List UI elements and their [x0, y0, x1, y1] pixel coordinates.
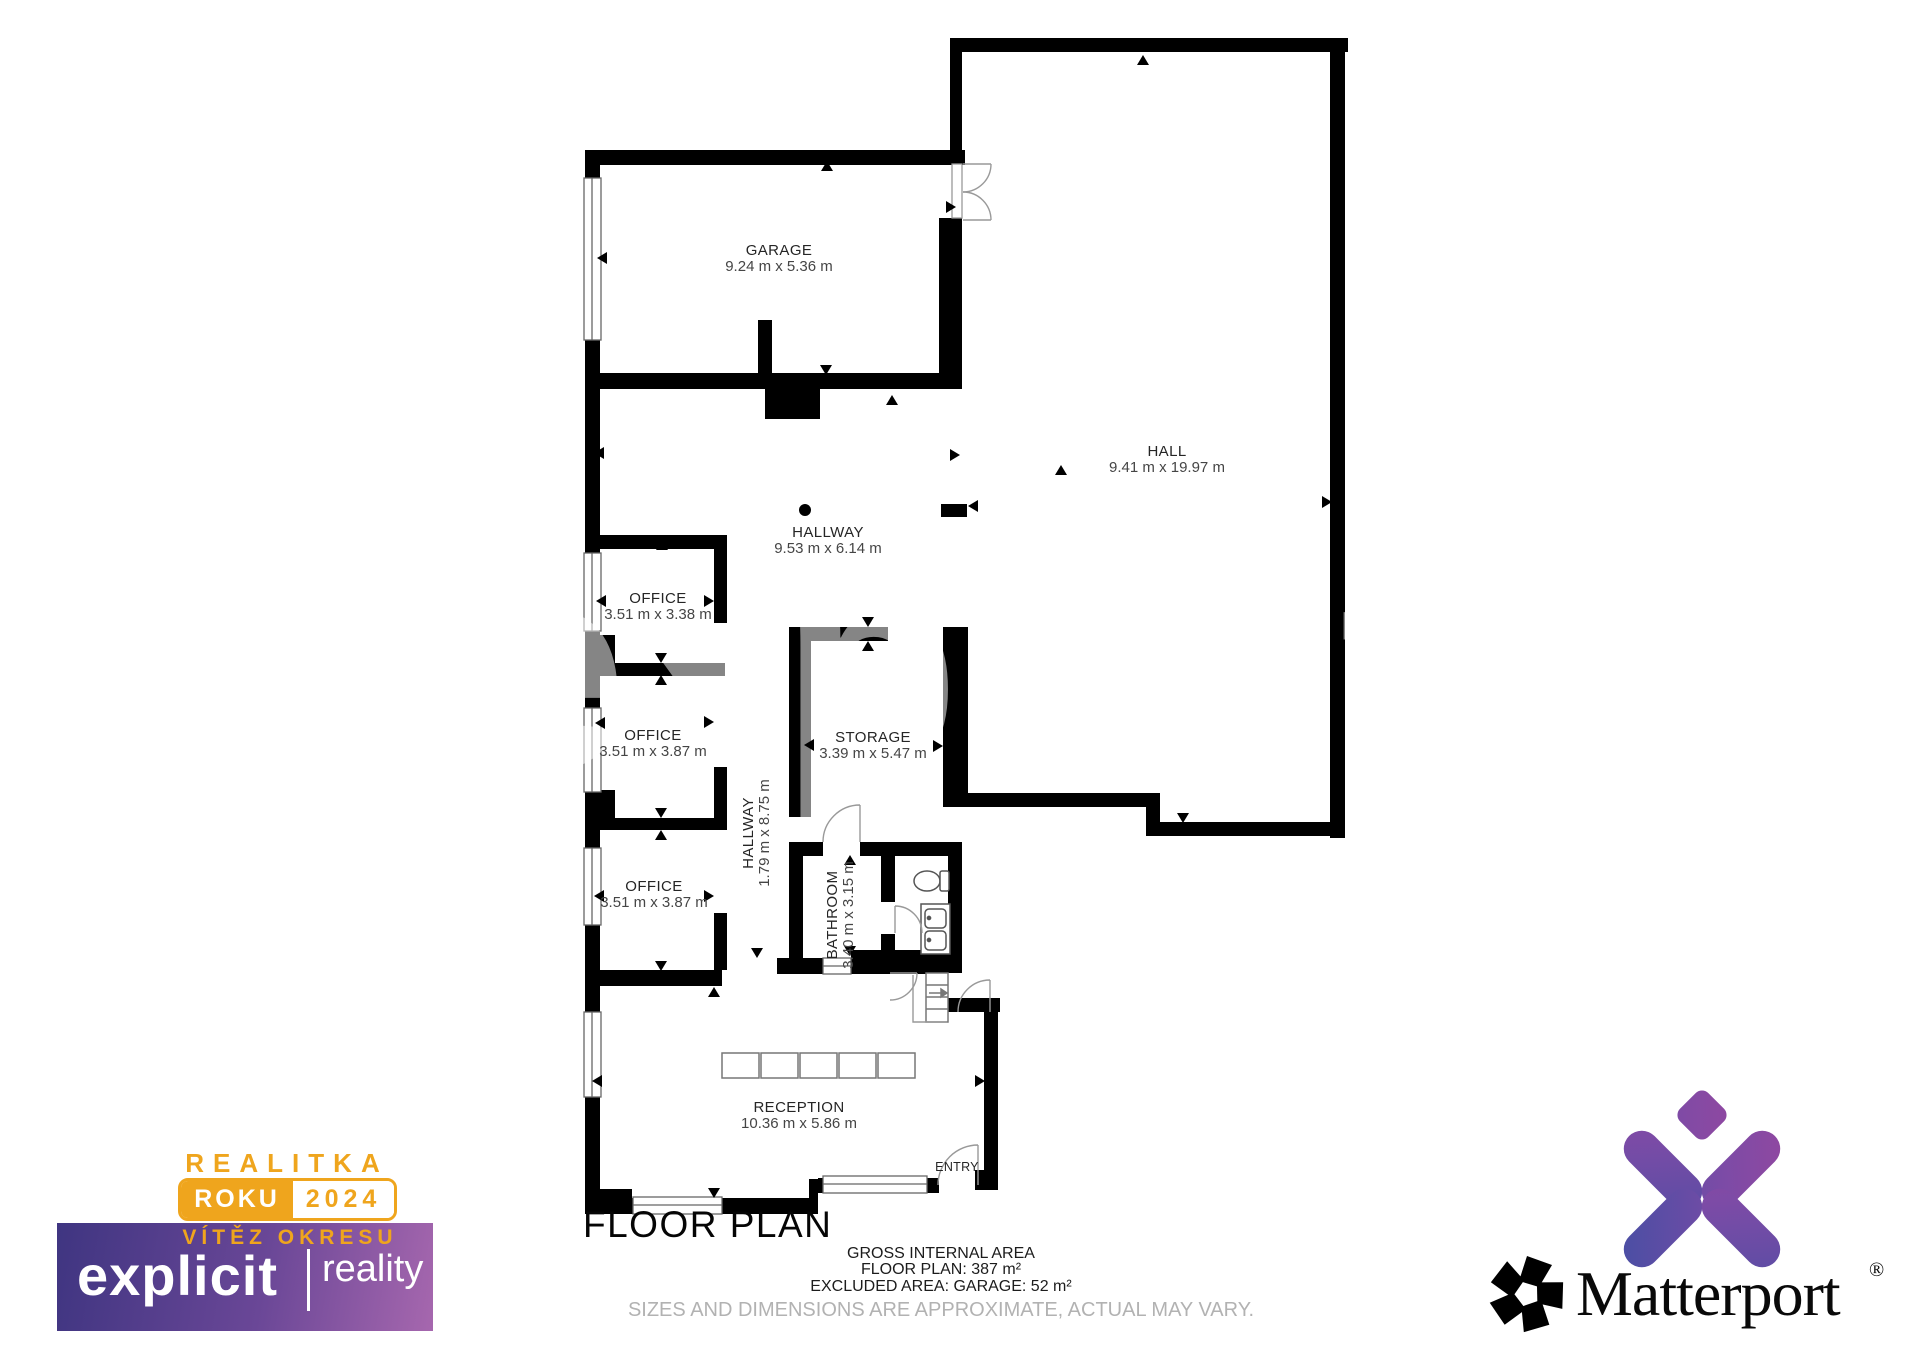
room-label-bathroom: BATHROOM 3.40 m x 3.15 m: [825, 861, 857, 969]
room-label-hallway-upper: HALLWAY 9.53 m x 6.14 m: [774, 525, 882, 557]
matterport-aperture-icon: [1484, 1256, 1570, 1339]
room-label-storage: STORAGE 3.39 m x 5.47 m: [819, 730, 927, 762]
registered-trademark-symbol: ®: [1869, 1259, 1884, 1282]
award-year-segment: 2024: [293, 1181, 394, 1218]
brand-explicit: explicit: [77, 1243, 278, 1308]
room-label-hallway-lower: HALLWAY 1.79 m x 8.75 m: [741, 779, 773, 887]
brand-reality: reality: [322, 1248, 423, 1291]
award-roku-segment: ROKU: [181, 1181, 293, 1218]
area-summary: GROSS INTERNAL AREA FLOOR PLAN: 387 m² E…: [810, 1246, 1071, 1295]
room-label-office-1: OFFICE 3.51 m x 3.38 m: [604, 591, 712, 623]
stairs-icon: [926, 973, 948, 1022]
room-label-entry: ENTRY: [935, 1159, 979, 1175]
room-label-reception: RECEPTION 10.36 m x 5.86 m: [741, 1100, 857, 1132]
floor-plan-area-line: FLOOR PLAN: 387 m²: [810, 1262, 1071, 1278]
room-label-office-3: OFFICE 3.51 m x 3.87 m: [600, 879, 708, 911]
award-year-badge: ROKU 2024: [178, 1178, 397, 1221]
matterport-x-icon: [1616, 1087, 1787, 1275]
watermark-text: explicit: [464, 501, 1437, 833]
room-label-office-2: OFFICE 3.51 m x 3.87 m: [599, 728, 707, 760]
room-label-garage: GARAGE 9.24 m x 5.36 m: [725, 243, 833, 275]
disclaimer-text: SIZES AND DIMENSIONS ARE APPROXIMATE, AC…: [628, 1299, 1254, 1322]
page-title: FLOOR PLAN: [583, 1204, 832, 1246]
reception-desks: [722, 1053, 915, 1078]
sink-vanity-icon: [921, 904, 950, 954]
brand-divider: [307, 1249, 310, 1311]
room-label-hall: HALL 9.41 m x 19.97 m: [1109, 444, 1225, 476]
gross-internal-area-line: GROSS INTERNAL AREA: [810, 1246, 1071, 1262]
award-title: REALITKA: [177, 1148, 397, 1179]
excluded-area-line: EXCLUDED AREA: GARAGE: 52 m²: [810, 1279, 1071, 1295]
toilet-icon: [914, 871, 949, 891]
floorplan-page: explicit: [0, 0, 1920, 1358]
matterport-wordmark: Matterport: [1576, 1257, 1840, 1331]
